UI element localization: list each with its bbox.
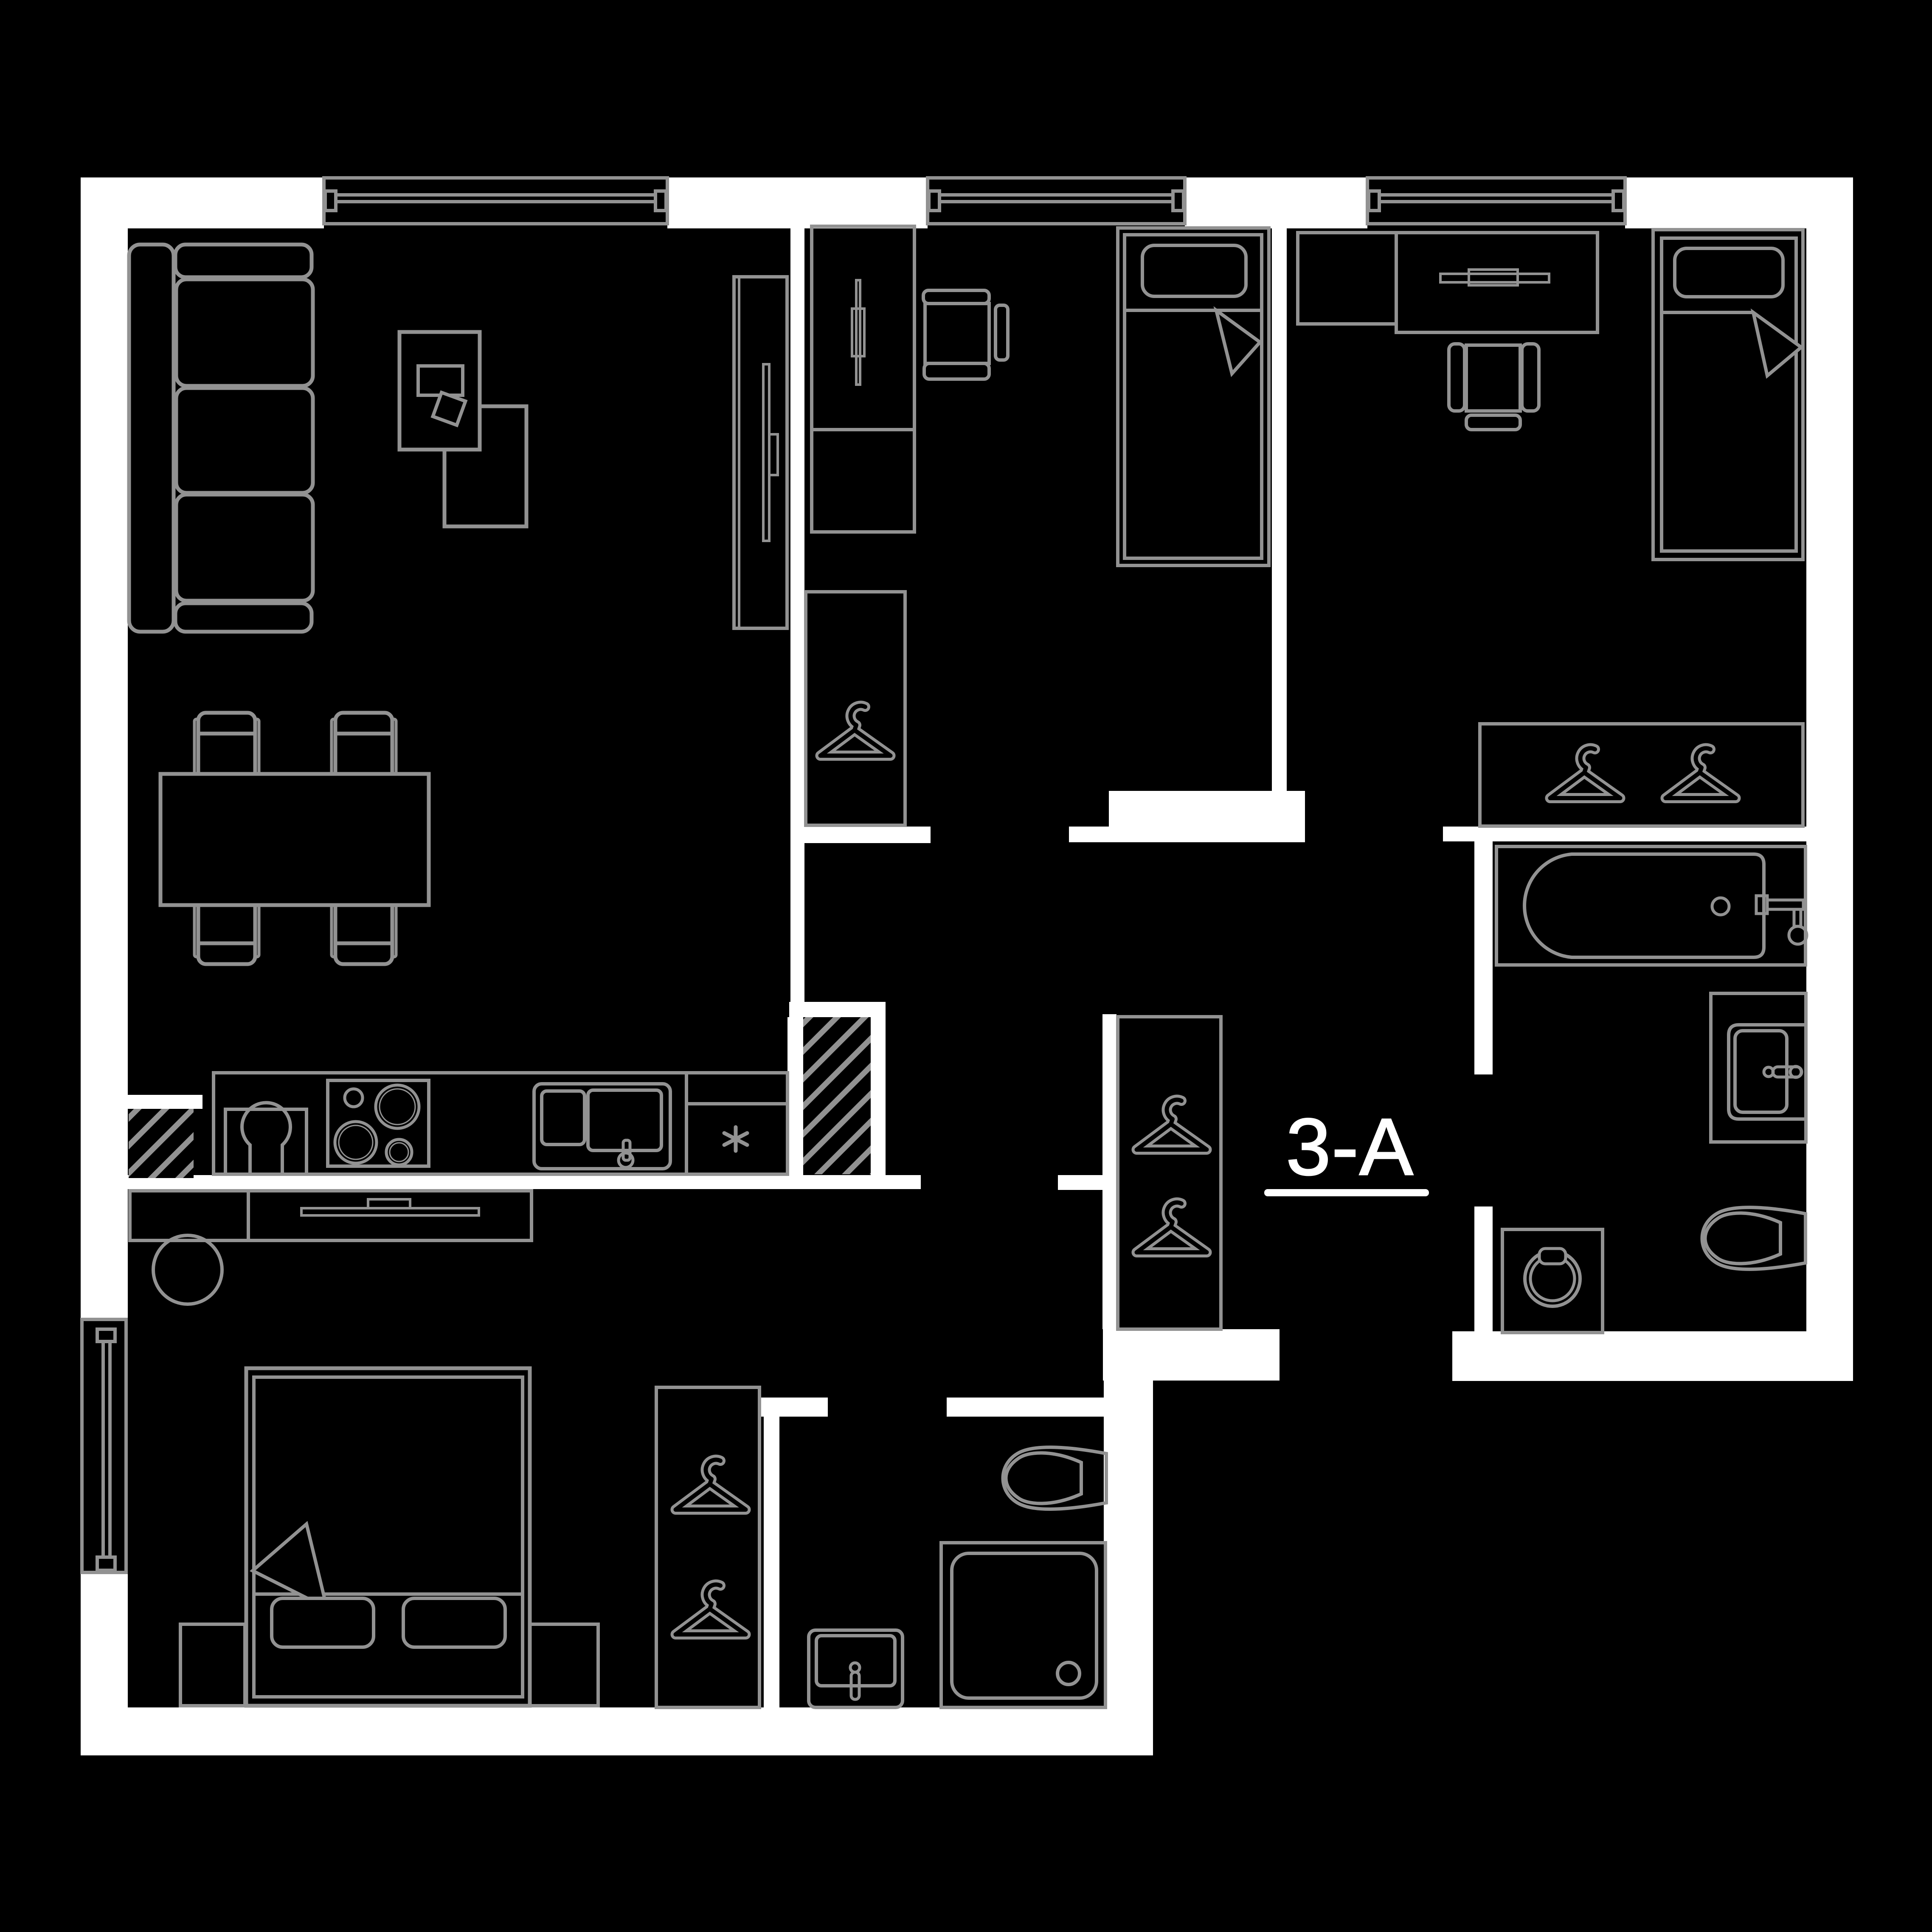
svg-text:3-A: 3-A: [1286, 1102, 1414, 1192]
